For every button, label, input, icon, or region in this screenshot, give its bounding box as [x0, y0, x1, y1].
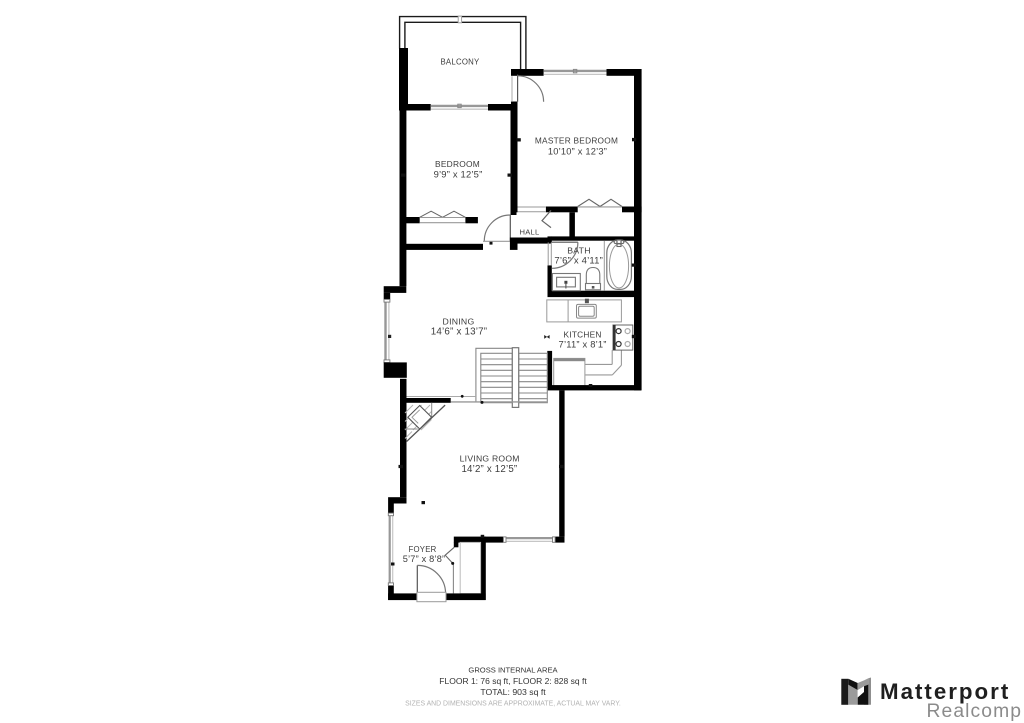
svg-text:LIVING ROOM: LIVING ROOM [460, 454, 520, 464]
svg-text:HALL: HALL [520, 228, 540, 237]
svg-text:14’2” x 12’5”: 14’2” x 12’5” [461, 464, 517, 475]
svg-text:7’6” x 4’11”: 7’6” x 4’11” [554, 255, 603, 266]
svg-text:SIZES AND DIMENSIONS ARE APPRO: SIZES AND DIMENSIONS ARE APPROXIMATE, AC… [405, 700, 621, 707]
svg-text:MASTER BEDROOM: MASTER BEDROOM [535, 135, 618, 145]
svg-text:BEDROOM: BEDROOM [435, 159, 480, 169]
svg-text:9’9” x 12’5”: 9’9” x 12’5” [434, 168, 483, 179]
svg-text:5’7” x 8’8”: 5’7” x 8’8” [403, 554, 446, 564]
svg-text:FOYER: FOYER [408, 545, 436, 554]
svg-text:TOTAL: 903 sq ft: TOTAL: 903 sq ft [480, 687, 546, 697]
svg-text:10’10” x 12’3”: 10’10” x 12’3” [548, 146, 607, 156]
svg-text:14’6” x 13’7”: 14’6” x 13’7” [431, 326, 488, 337]
svg-text:Realcomp: Realcomp [927, 701, 1023, 722]
svg-text:FLOOR 1: 76 sq ft, FLOOR 2: 82: FLOOR 1: 76 sq ft, FLOOR 2: 828 sq ft [439, 676, 587, 686]
svg-text:7’11” x 8’1”: 7’11” x 8’1” [559, 339, 607, 350]
svg-text:GROSS INTERNAL AREA: GROSS INTERNAL AREA [468, 666, 558, 675]
svg-text:BATH: BATH [567, 245, 591, 255]
svg-text:DINING: DINING [443, 316, 475, 326]
svg-text:BALCONY: BALCONY [440, 58, 480, 67]
